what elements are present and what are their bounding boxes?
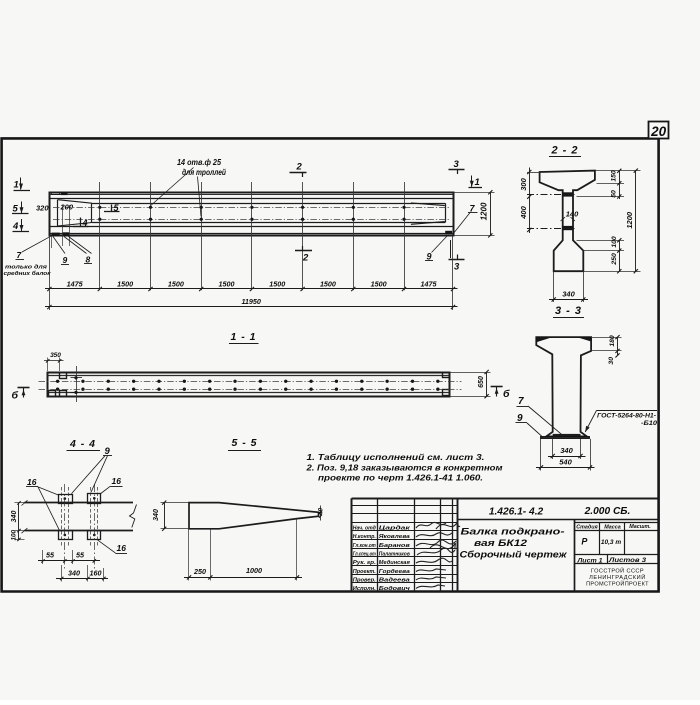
svg-text:Мединская: Мединская (379, 560, 411, 566)
svg-text:4 - 4: 4 - 4 (69, 438, 96, 450)
svg-text:только для: только для (5, 265, 48, 271)
svg-text:250: 250 (611, 253, 618, 266)
svg-text:340: 340 (560, 446, 573, 455)
svg-text:Гордеева: Гордеева (379, 569, 410, 575)
svg-text:160: 160 (90, 569, 102, 578)
svg-text:1. Таблицу исполнений см. лист: 1. Таблицу исполнений см. лист 3. (307, 453, 485, 462)
svg-text:320: 320 (36, 204, 49, 213)
svg-text:1500: 1500 (219, 279, 235, 288)
svg-text:Гл.спец.от: Гл.спец.от (353, 551, 376, 557)
svg-text:2: 2 (296, 162, 303, 173)
svg-text:Масшт.: Масшт. (629, 524, 651, 530)
svg-text:Вадеева: Вадеева (379, 577, 410, 583)
svg-text:650: 650 (478, 376, 485, 388)
svg-text:100: 100 (611, 236, 618, 248)
svg-text:340: 340 (68, 569, 80, 578)
svg-text:4: 4 (12, 221, 19, 232)
svg-text:200: 200 (60, 203, 74, 212)
svg-text:540: 540 (559, 458, 572, 467)
svg-text:4: 4 (82, 218, 88, 228)
svg-text:Балка подкрано-: Балка подкрано- (461, 526, 565, 536)
svg-text:20: 20 (650, 124, 667, 139)
svg-text:Лист 1: Лист 1 (576, 557, 602, 564)
svg-text:400: 400 (519, 205, 528, 219)
svg-text:Гл.кон.от: Гл.кон.от (353, 543, 376, 549)
svg-text:2 - 2: 2 - 2 (550, 144, 578, 156)
svg-text:100: 100 (11, 529, 18, 540)
svg-text:3: 3 (454, 159, 460, 170)
svg-text:вая БК12: вая БК12 (474, 538, 528, 548)
svg-text:16: 16 (27, 477, 37, 487)
svg-text:Баранов: Баранов (379, 543, 411, 549)
svg-text:40: 40 (318, 508, 325, 517)
svg-text:1 - 1: 1 - 1 (230, 331, 256, 343)
svg-text:5 - 5: 5 - 5 (231, 437, 257, 449)
svg-text:1500: 1500 (269, 279, 285, 288)
svg-text:2: 2 (302, 253, 309, 264)
svg-text:16: 16 (112, 476, 122, 486)
svg-text:1.426.1- 4.2: 1.426.1- 4.2 (489, 507, 544, 518)
svg-text:9: 9 (63, 255, 68, 265)
svg-text:180: 180 (609, 335, 616, 347)
svg-text:50: 50 (611, 190, 618, 198)
svg-text:250: 250 (193, 567, 206, 576)
svg-text:Листов 3: Листов 3 (608, 557, 647, 564)
svg-text:Проект.: Проект. (353, 569, 376, 575)
svg-text:средних балок: средних балок (4, 270, 52, 277)
svg-text:1: 1 (475, 177, 480, 188)
svg-text:1475: 1475 (67, 279, 84, 288)
svg-text:1500: 1500 (168, 279, 184, 288)
svg-text:-Б10: -Б10 (641, 421, 658, 427)
svg-text:1200: 1200 (625, 211, 634, 229)
svg-text:Сборочный чертеж: Сборочный чертеж (460, 549, 568, 559)
svg-text:Н.контр.: Н.контр. (353, 534, 376, 540)
svg-text:340: 340 (562, 290, 575, 299)
svg-text:Стадия: Стадия (576, 525, 598, 531)
svg-text:Палатников: Палатников (379, 551, 411, 557)
svg-text:140: 140 (566, 210, 579, 219)
svg-text:ГОССТРОЙ СССР: ГОССТРОЙ СССР (591, 566, 644, 574)
svg-text:Нач. отд: Нач. отд (353, 526, 376, 532)
svg-text:Масса: Масса (604, 525, 621, 531)
svg-text:1: 1 (14, 180, 19, 191)
svg-text:1475: 1475 (421, 279, 438, 288)
svg-text:1500: 1500 (117, 279, 133, 288)
svg-text:9: 9 (427, 251, 432, 261)
svg-text:14 отв.ф 25: 14 отв.ф 25 (177, 158, 222, 167)
svg-text:350: 350 (50, 352, 61, 359)
svg-text:11950: 11950 (241, 297, 260, 306)
svg-text:Исполн.: Исполн. (353, 586, 376, 592)
svg-text:б: б (12, 390, 19, 402)
svg-text:Р: Р (581, 536, 588, 546)
svg-text:Цардак: Цардак (379, 526, 412, 532)
svg-text:Бодович: Бодович (379, 586, 411, 592)
svg-text:проекте по черт 1.426.1-41 1.0: проекте по черт 1.426.1-41 1.060. (318, 474, 483, 483)
svg-text:1500: 1500 (320, 279, 336, 288)
svg-text:2. Поз. 9,18 заказываются в ко: 2. Поз. 9,18 заказываются в конкретном (305, 464, 502, 473)
svg-text:Рук. гр.: Рук. гр. (353, 560, 376, 566)
svg-text:30: 30 (608, 357, 615, 365)
svg-text:1200: 1200 (480, 202, 489, 220)
svg-text:Яковлева: Яковлева (378, 534, 410, 540)
svg-text:3 - 3: 3 - 3 (555, 305, 582, 317)
svg-text:340: 340 (11, 511, 18, 523)
svg-text:8: 8 (86, 255, 91, 265)
svg-text:б: б (503, 388, 510, 400)
svg-text:7: 7 (518, 396, 524, 407)
svg-text:2.000 СБ.: 2.000 СБ. (584, 506, 631, 517)
svg-text:55: 55 (46, 551, 55, 560)
svg-text:ПРОМСТРОЙПРОЕКТ: ПРОМСТРОЙПРОЕКТ (586, 579, 649, 587)
svg-text:ЛЕНИНГРАДСКИЙ: ЛЕНИНГРАДСКИЙ (589, 573, 646, 581)
svg-text:1500: 1500 (371, 279, 387, 288)
svg-text:1000: 1000 (246, 566, 262, 575)
svg-text:10,3 т: 10,3 т (601, 539, 621, 546)
svg-text:55: 55 (76, 551, 85, 560)
svg-text:150: 150 (611, 170, 618, 182)
svg-text:Провер.: Провер. (353, 577, 376, 583)
svg-text:300: 300 (519, 177, 528, 190)
svg-text:16: 16 (117, 543, 127, 553)
svg-text:340: 340 (153, 509, 160, 521)
svg-text:ГОСТ-5264-80-Н1-: ГОСТ-5264-80-Н1- (597, 414, 656, 420)
svg-text:3: 3 (454, 262, 460, 273)
